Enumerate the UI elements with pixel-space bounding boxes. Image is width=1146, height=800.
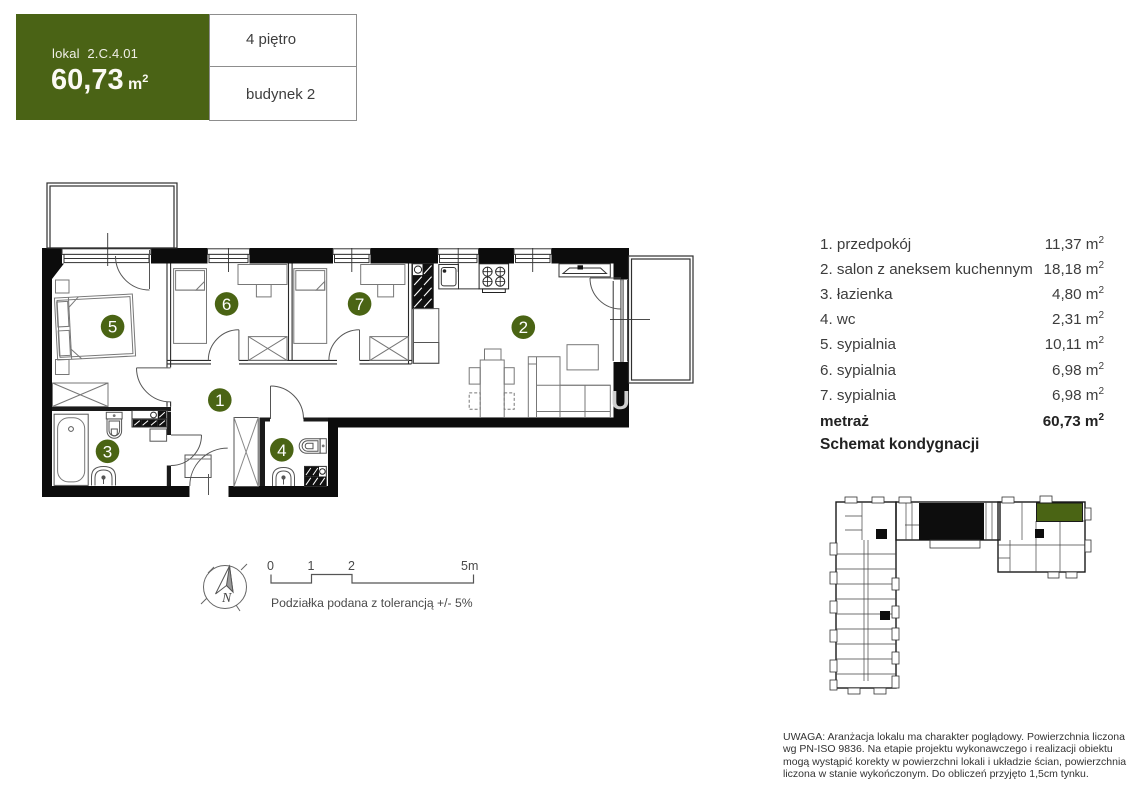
svg-text:2: 2 [348,559,355,573]
svg-text:N: N [221,591,232,606]
svg-text:5: 5 [108,318,117,337]
svg-text:5m: 5m [461,559,478,573]
svg-text:1: 1 [308,559,315,573]
svg-text:6: 6 [222,295,231,314]
svg-text:0: 0 [267,559,274,573]
svg-text:Ul: Ul [611,385,637,415]
svg-text:3: 3 [103,442,112,461]
svg-text:2: 2 [519,318,528,337]
svg-text:1: 1 [215,391,224,410]
svg-text:7: 7 [355,295,364,314]
svg-text:4: 4 [277,441,286,460]
